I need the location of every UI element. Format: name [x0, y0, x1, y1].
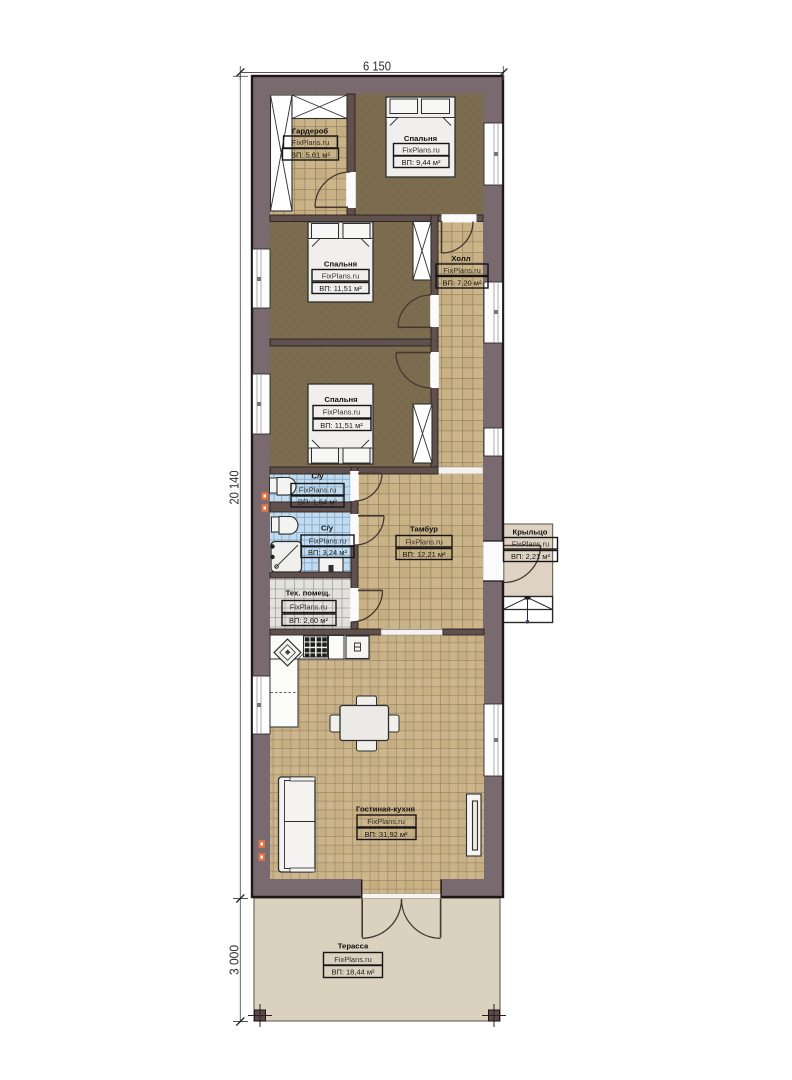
svg-text:FixPlans.ru: FixPlans.ru [292, 138, 330, 147]
svg-text:ВП: 2,21 м²: ВП: 2,21 м² [511, 552, 550, 561]
svg-text:С/у: С/у [312, 472, 325, 481]
svg-text:ВП: 7,20 м²: ВП: 7,20 м² [443, 279, 482, 288]
svg-text:FixPlans.ru: FixPlans.ru [443, 266, 481, 275]
svg-text:FixPlans.ru: FixPlans.ru [367, 817, 405, 826]
svg-text:FixPlans.ru: FixPlans.ru [309, 537, 347, 546]
svg-text:ВП: 31,92 м²: ВП: 31,92 м² [364, 830, 408, 839]
svg-text:Тамбур: Тамбур [410, 525, 438, 534]
svg-text:ВП: 11,51 м²: ВП: 11,51 м² [319, 284, 362, 293]
svg-text:Холл: Холл [451, 254, 470, 263]
svg-text:Спальня: Спальня [404, 134, 437, 143]
svg-text:ВП: 18,44 м²: ВП: 18,44 м² [331, 968, 375, 977]
svg-text:ВП: 2,60 м²: ВП: 2,60 м² [289, 616, 328, 625]
svg-text:FixPlans.ru: FixPlans.ru [405, 538, 443, 547]
svg-text:Тех. помещ.: Тех. помещ. [286, 589, 331, 598]
svg-text:FixPlans.ru: FixPlans.ru [290, 603, 328, 612]
svg-text:Крыльцо: Крыльцо [513, 528, 548, 537]
svg-text:FixPlans.ru: FixPlans.ru [322, 272, 360, 281]
svg-text:Спальня: Спальня [324, 395, 357, 404]
svg-text:20 140: 20 140 [227, 471, 242, 505]
svg-text:ВП: 5,61 м²: ВП: 5,61 м² [291, 151, 330, 160]
svg-text:ВП: 3,24 м²: ВП: 3,24 м² [308, 548, 347, 557]
svg-text:6 150: 6 150 [363, 59, 391, 74]
svg-text:FixPlans.ru: FixPlans.ru [323, 408, 361, 417]
svg-text:Спальня: Спальня [324, 260, 357, 269]
svg-text:ВП: 1,64 м²: ВП: 1,64 м² [298, 498, 337, 507]
svg-text:Терасса: Терасса [338, 942, 369, 951]
svg-text:FixPlans.ru: FixPlans.ru [512, 540, 550, 549]
svg-text:Гардероб: Гардероб [292, 127, 329, 136]
svg-text:ВП: 9,44 м²: ВП: 9,44 м² [402, 158, 441, 167]
svg-text:FixPlans.ru: FixPlans.ru [334, 955, 372, 964]
svg-text:ВП: 11,51 м²: ВП: 11,51 м² [320, 421, 363, 430]
svg-text:3 000: 3 000 [227, 945, 242, 975]
svg-text:FixPlans.ru: FixPlans.ru [402, 146, 440, 155]
svg-text:ВП: 12,21 м²: ВП: 12,21 м² [402, 550, 446, 559]
svg-text:Гостиная-кухня: Гостиная-кухня [356, 805, 415, 814]
svg-text:FixPlans.ru: FixPlans.ru [299, 486, 337, 495]
svg-text:С/у: С/у [321, 524, 334, 533]
